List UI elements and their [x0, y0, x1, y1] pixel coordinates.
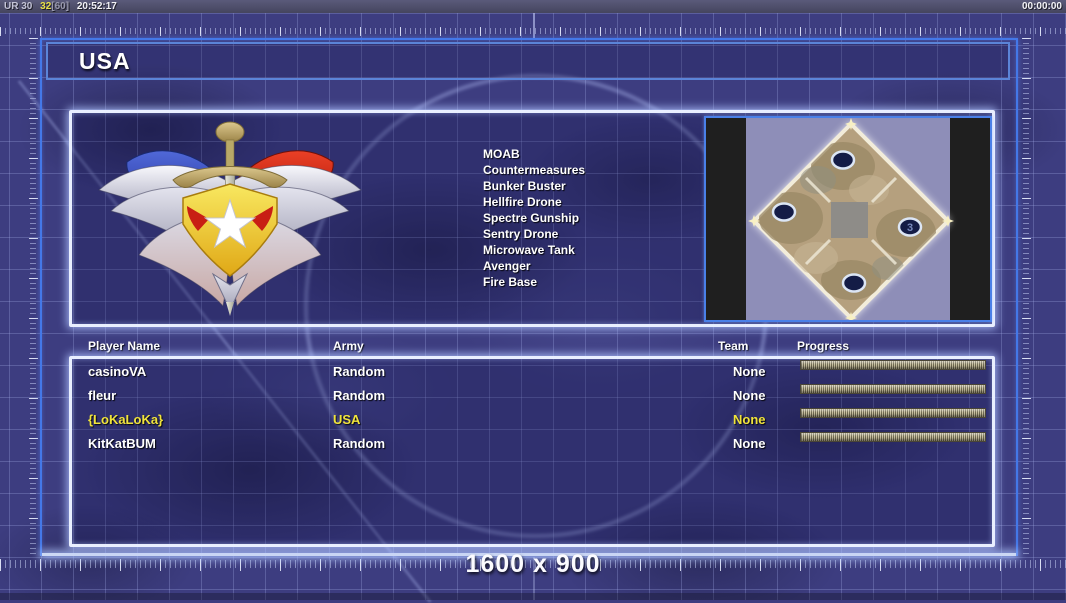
progress-bar	[800, 384, 986, 394]
table-row: fleur Random None	[70, 384, 994, 408]
table-row: KitKatBUM Random None	[70, 432, 994, 456]
unit-item: Spectre Gunship	[483, 210, 585, 226]
progress-bar-fill	[801, 385, 985, 393]
unit-item: Countermeasures	[483, 162, 585, 178]
progress-bar-fill	[801, 409, 985, 417]
unit-item: Hellfire Drone	[483, 194, 585, 210]
ruler-right	[1022, 38, 1031, 557]
map-letterbox-right	[950, 118, 990, 320]
map-preview-image: 3	[706, 118, 990, 320]
start-marker	[773, 204, 795, 221]
player-team: None	[733, 360, 766, 384]
progress-bar-fill	[801, 361, 985, 369]
status-bar: UR 30 32[60] 20:52:17 00:00:00	[0, 0, 1066, 13]
header-player-name: Player Name	[88, 339, 160, 353]
start-marker	[843, 275, 865, 292]
player-team: None	[733, 432, 766, 456]
unit-list: MOAB Countermeasures Bunker Buster Hellf…	[483, 146, 585, 290]
unit-item: Bunker Buster	[483, 178, 585, 194]
unit-item: MOAB	[483, 146, 585, 162]
player-team: None	[733, 384, 766, 408]
progress-bar	[800, 360, 986, 370]
match-timer: 00:00:00	[1022, 0, 1062, 13]
player-name: {LoKaLoKa}	[88, 408, 163, 432]
progress-bar	[800, 432, 986, 442]
header-team: Team	[718, 339, 748, 353]
progress-bar	[800, 408, 986, 418]
bottom-edge-shade	[0, 593, 1066, 600]
player-name: KitKatBUM	[88, 432, 156, 456]
unit-item: Fire Base	[483, 274, 585, 290]
player-army: Random	[333, 432, 385, 456]
fps-cap: [60]	[51, 1, 69, 12]
table-row: {LoKaLoKa} USA None	[70, 408, 994, 432]
unit-item: Microwave Tank	[483, 242, 585, 258]
fps-value: 32	[40, 1, 51, 12]
system-clock: 20:52:17	[77, 1, 117, 12]
player-army: Random	[333, 384, 385, 408]
usa-eagle-emblem-icon	[85, 118, 375, 316]
player-army: USA	[333, 408, 360, 432]
player-name: fleur	[88, 384, 116, 408]
unit-item: Avenger	[483, 258, 585, 274]
player-army: Random	[333, 360, 385, 384]
renderer-label: UR 30	[4, 1, 32, 12]
ruler-left	[29, 38, 38, 557]
faction-title: USA	[79, 48, 131, 74]
header-progress: Progress	[797, 339, 849, 353]
header-army: Army	[333, 339, 364, 353]
render-stats: UR 30 32[60] 20:52:17	[4, 0, 117, 13]
map-letterbox-left	[706, 118, 746, 320]
ruler-top	[0, 27, 1066, 36]
table-row: casinoVA Random None	[70, 360, 994, 384]
map-preview: 3	[704, 116, 992, 322]
player-team: None	[733, 408, 766, 432]
unit-item: Sentry Drone	[483, 226, 585, 242]
resolution-overlay: 1600 x 900	[0, 550, 1066, 579]
faction-title-bar: USA	[46, 42, 1010, 80]
player-name: casinoVA	[88, 360, 146, 384]
progress-bar-fill	[801, 433, 985, 441]
start-marker-number: 3	[907, 222, 913, 234]
start-marker	[832, 152, 854, 169]
